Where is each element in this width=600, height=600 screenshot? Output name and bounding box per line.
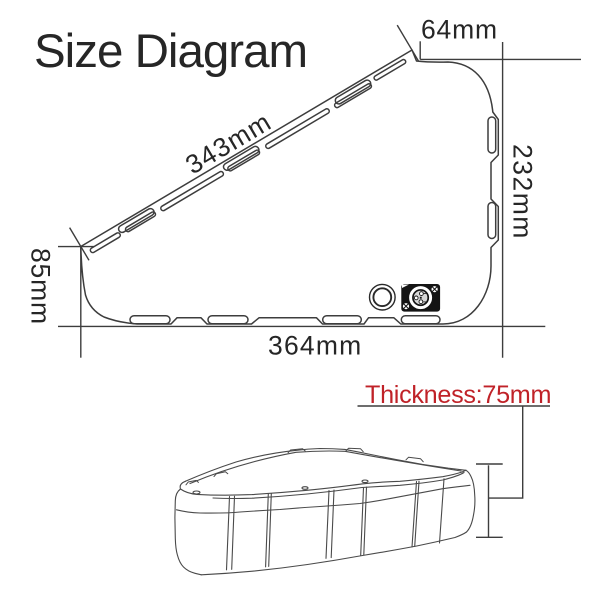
svg-text:64mm: 64mm bbox=[421, 14, 498, 44]
svg-text:364mm: 364mm bbox=[268, 331, 362, 361]
svg-text:85mm: 85mm bbox=[26, 248, 56, 325]
svg-text:232mm: 232mm bbox=[508, 144, 538, 240]
svg-text:Size Diagram: Size Diagram bbox=[34, 25, 307, 78]
svg-text:Thickness:75mm: Thickness:75mm bbox=[365, 381, 551, 409]
